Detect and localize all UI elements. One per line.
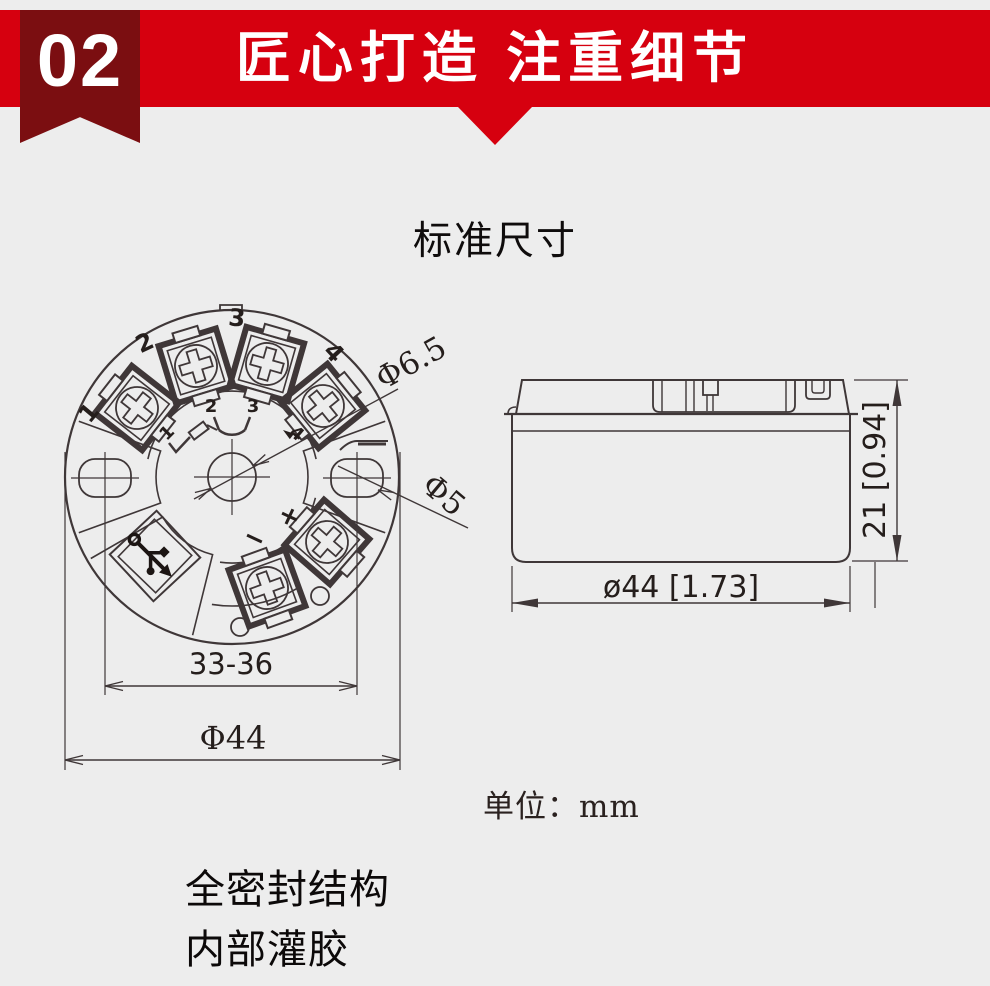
dim-outer-diameter-label: Φ44 [200,719,267,757]
terminal-number-3: 3 [227,303,247,333]
dim-span-label: 33-36 [189,647,273,681]
transmitter-top-view: 1 2 3 4 1 2 3 4 + − Φ6.5 [65,303,472,770]
dim-height: 21 [0.94] [852,380,908,561]
dim-side-hole-label: Φ5 [415,467,473,524]
dim-width: ø44 [1.73] [512,566,850,612]
feature-sealed-structure: 全密封结构 [185,857,390,915]
feature-potted-interior: 内部灌胶 [185,917,349,975]
terminal-number-2: 2 [131,327,158,359]
schematic-number-2: 2 [205,396,218,417]
dimensions-diagram: 1 2 3 4 1 2 3 4 + − Φ6.5 [0,0,990,986]
dim-width-label: ø44 [1.73] [603,570,759,605]
dim-height-label: 21 [0.94] [858,401,893,539]
transmitter-side-view: ø44 [1.73] 21 [0.94] [504,380,908,612]
terminal-3 [228,319,307,409]
dim-center-hole-label: Φ6.5 [370,329,453,397]
terminal-number-4: 4 [318,337,350,368]
usb-port [110,511,200,601]
schematic-number-3: 3 [247,396,260,417]
usb-icon [120,524,183,587]
pilot-hole [311,587,329,605]
unit-label: 单位：mm [483,781,640,826]
